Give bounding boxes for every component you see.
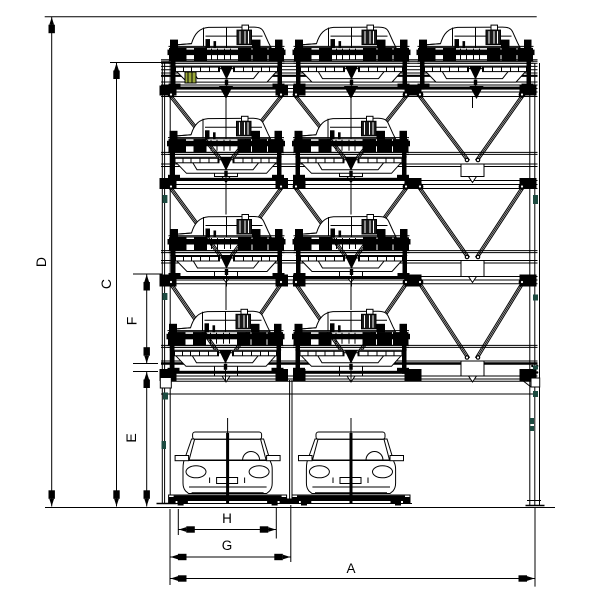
svg-text:F: F xyxy=(124,317,140,326)
svg-text:E: E xyxy=(123,433,139,442)
svg-text:A: A xyxy=(346,561,355,576)
svg-text:G: G xyxy=(222,538,233,553)
svg-text:H: H xyxy=(222,511,232,526)
svg-text:D: D xyxy=(33,257,49,267)
svg-text:C: C xyxy=(98,279,114,289)
